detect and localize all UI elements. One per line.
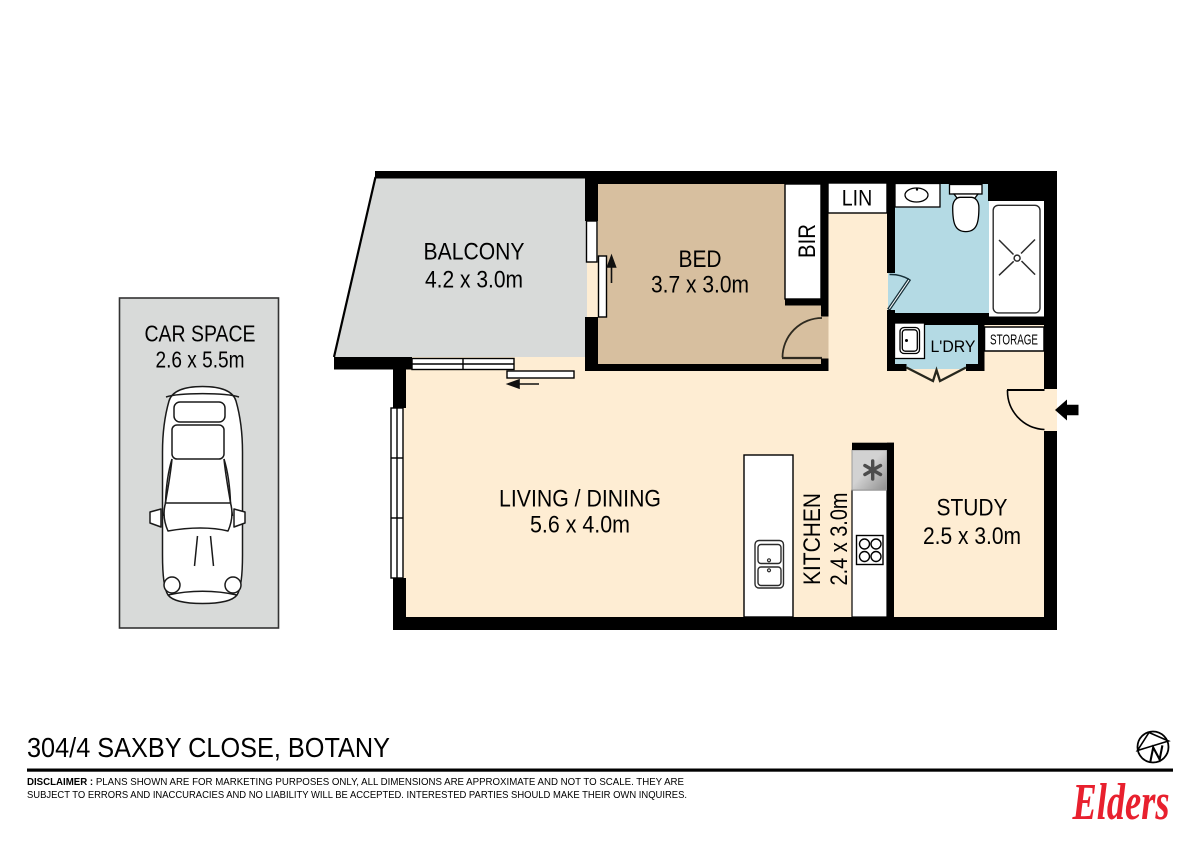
svg-text:STORAGE: STORAGE (990, 332, 1038, 349)
svg-text:LIVING / DINING: LIVING / DINING (499, 485, 661, 512)
svg-text:LIN: LIN (842, 186, 873, 211)
svg-text:3.7 x 3.0m: 3.7 x 3.0m (651, 272, 749, 299)
svg-text:STUDY: STUDY (937, 495, 1008, 522)
svg-text:2.4 x 3.0m: 2.4 x 3.0m (826, 493, 853, 586)
svg-text:L'DRY: L'DRY (931, 338, 976, 356)
svg-text:SUBJECT TO ERRORS AND INACCURA: SUBJECT TO ERRORS AND INACCURACIES AND N… (27, 790, 687, 801)
svg-text:BED: BED (679, 246, 722, 273)
svg-text:BALCONY: BALCONY (424, 239, 525, 266)
svg-text:2.6 x 5.5m: 2.6 x 5.5m (156, 347, 245, 373)
svg-text:5.6 x 4.0m: 5.6 x 4.0m (530, 511, 630, 538)
svg-text:Elders: Elders (1072, 774, 1170, 831)
svg-text:DISCLAIMER : PLANS SHOWN ARE: DISCLAIMER : PLANS SHOWN ARE FOR MARKETI… (27, 777, 684, 788)
svg-text:4.2 x 3.0m: 4.2 x 3.0m (425, 267, 523, 294)
svg-text:CAR SPACE: CAR SPACE (145, 321, 256, 347)
svg-text:KITCHEN: KITCHEN (799, 493, 826, 585)
svg-text:BIR: BIR (794, 224, 821, 258)
svg-text:2.5 x 3.0m: 2.5 x 3.0m (923, 523, 1021, 550)
svg-text:304/4 SAXBY CLOSE, BOTANY: 304/4 SAXBY CLOSE, BOTANY (27, 732, 390, 763)
